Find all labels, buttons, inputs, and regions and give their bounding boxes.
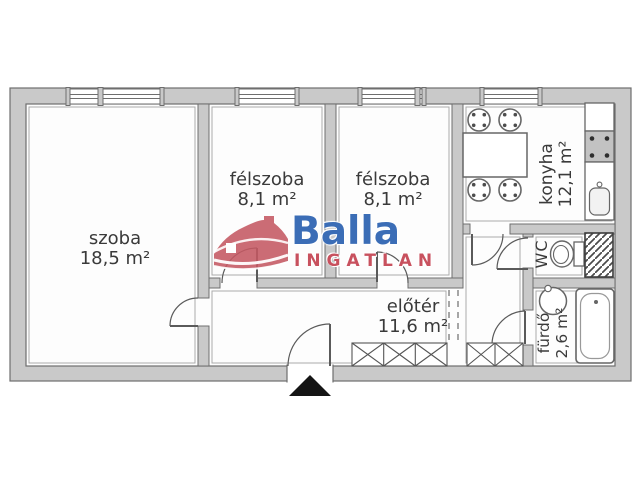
room-area: 11,6 m² bbox=[378, 317, 449, 337]
room-label-wc: WC bbox=[532, 240, 552, 269]
room-area: 8,1 m² bbox=[356, 190, 431, 210]
room-label-szoba: szoba 18,5 m² bbox=[80, 229, 151, 269]
room-label-konyha: konyha 12,1 m² bbox=[538, 141, 576, 208]
kitchen-counter bbox=[585, 103, 614, 131]
wardrobe-row-corridor bbox=[467, 343, 523, 366]
logo-house-icon bbox=[212, 216, 290, 272]
window-felszoba1 bbox=[235, 88, 299, 106]
logo-brand-text: Balla bbox=[291, 209, 400, 254]
room-area: 12,1 m² bbox=[557, 141, 576, 208]
logo-subtitle-text: INGATLAN bbox=[294, 251, 438, 271]
kitchen-sink bbox=[585, 162, 614, 220]
room-label-furdo: fürdő 2,6 m² bbox=[535, 308, 571, 359]
room-label-felszoba2: félszoba 8,1 m² bbox=[356, 170, 431, 210]
room-area: 8,1 m² bbox=[230, 190, 305, 210]
room-label-felszoba1: félszoba 8,1 m² bbox=[230, 170, 305, 210]
floorplan-image: szoba 18,5 m² félszoba 8,1 m² félszoba 8… bbox=[0, 0, 640, 480]
bathtub bbox=[576, 289, 614, 363]
kitchen-table bbox=[463, 133, 527, 177]
room-name: fürdő bbox=[535, 308, 553, 359]
balla-ingatlan-logo: Balla INGATLAN bbox=[212, 213, 438, 275]
room-name: konyha bbox=[538, 141, 557, 208]
room-name: előtér bbox=[378, 297, 449, 317]
room-name: félszoba bbox=[230, 170, 305, 190]
stove bbox=[585, 131, 614, 162]
room-area: 2,6 m² bbox=[553, 308, 571, 359]
window-felszoba2 bbox=[358, 88, 426, 106]
room-name: félszoba bbox=[356, 170, 431, 190]
window-konyha bbox=[480, 88, 542, 106]
toilet bbox=[551, 241, 585, 267]
room-area: 18,5 m² bbox=[80, 249, 151, 269]
wardrobes bbox=[352, 343, 523, 366]
room-name: WC bbox=[532, 240, 552, 269]
room-name: szoba bbox=[80, 229, 151, 249]
window-szoba bbox=[66, 88, 164, 106]
room-label-eloter: előtér 11,6 m² bbox=[378, 297, 449, 337]
shaft-hatched bbox=[585, 233, 613, 277]
wardrobe-row-eloter bbox=[352, 343, 447, 366]
